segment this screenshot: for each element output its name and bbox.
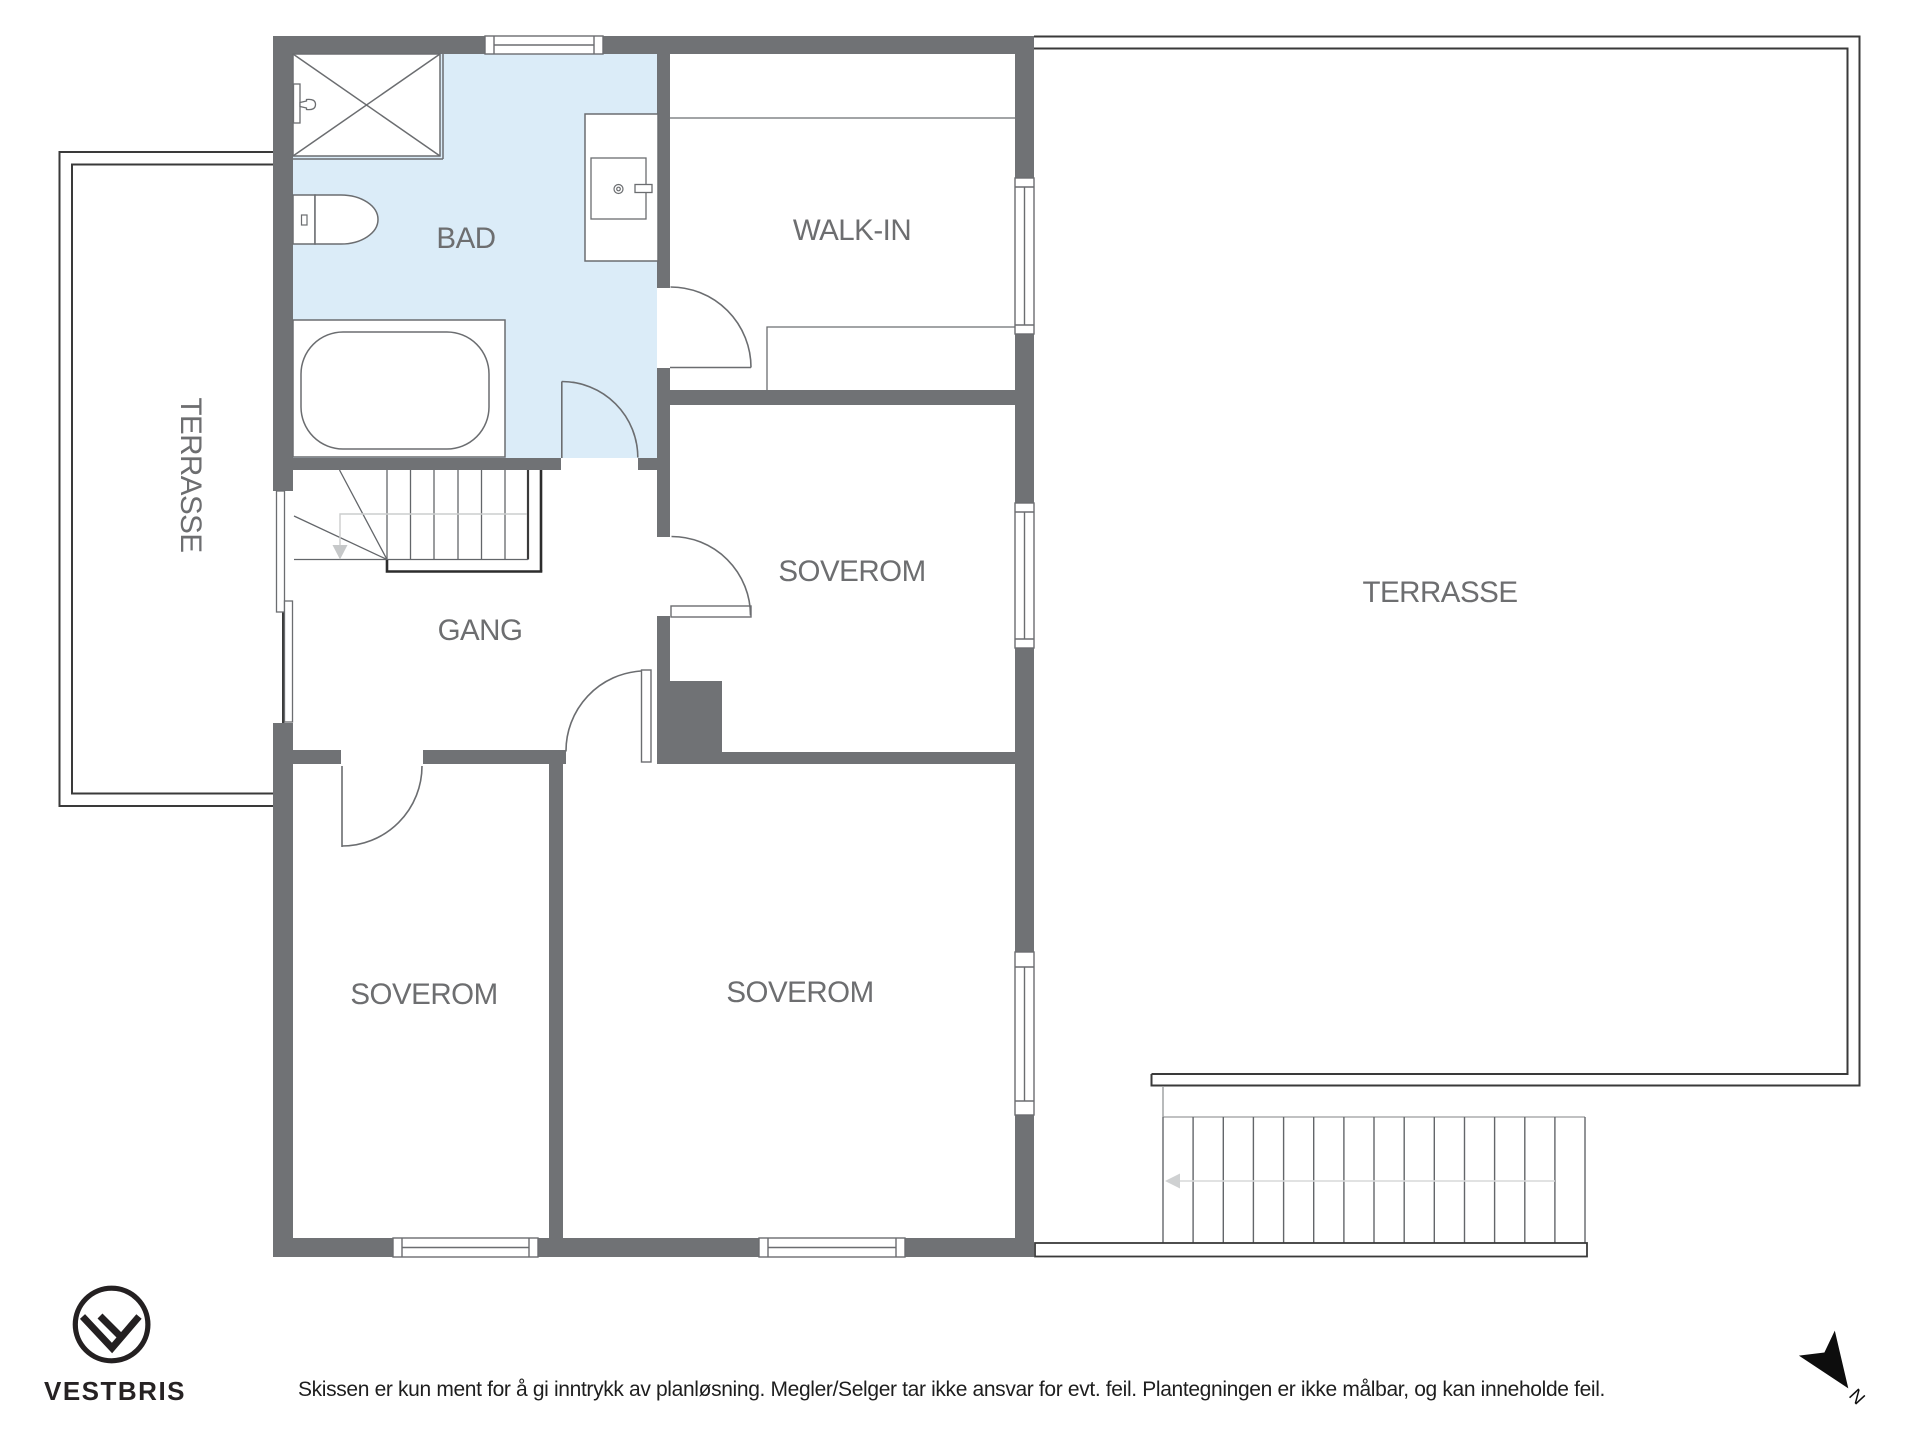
svg-text:SOVEROM: SOVEROM xyxy=(350,978,497,1011)
svg-text:Skissen er kun ment for å gi i: Skissen er kun ment for å gi inntrykk av… xyxy=(298,1378,1605,1401)
svg-text:TERRASSE: TERRASSE xyxy=(1362,576,1517,609)
svg-text:BAD: BAD xyxy=(436,222,495,255)
svg-text:WALK-IN: WALK-IN xyxy=(793,214,911,247)
svg-text:TERRASSE: TERRASSE xyxy=(174,397,207,552)
svg-text:SOVEROM: SOVEROM xyxy=(778,555,925,588)
svg-text:VESTBRIS: VESTBRIS xyxy=(44,1376,186,1406)
svg-text:SOVEROM: SOVEROM xyxy=(726,976,873,1009)
svg-text:GANG: GANG xyxy=(438,614,523,647)
